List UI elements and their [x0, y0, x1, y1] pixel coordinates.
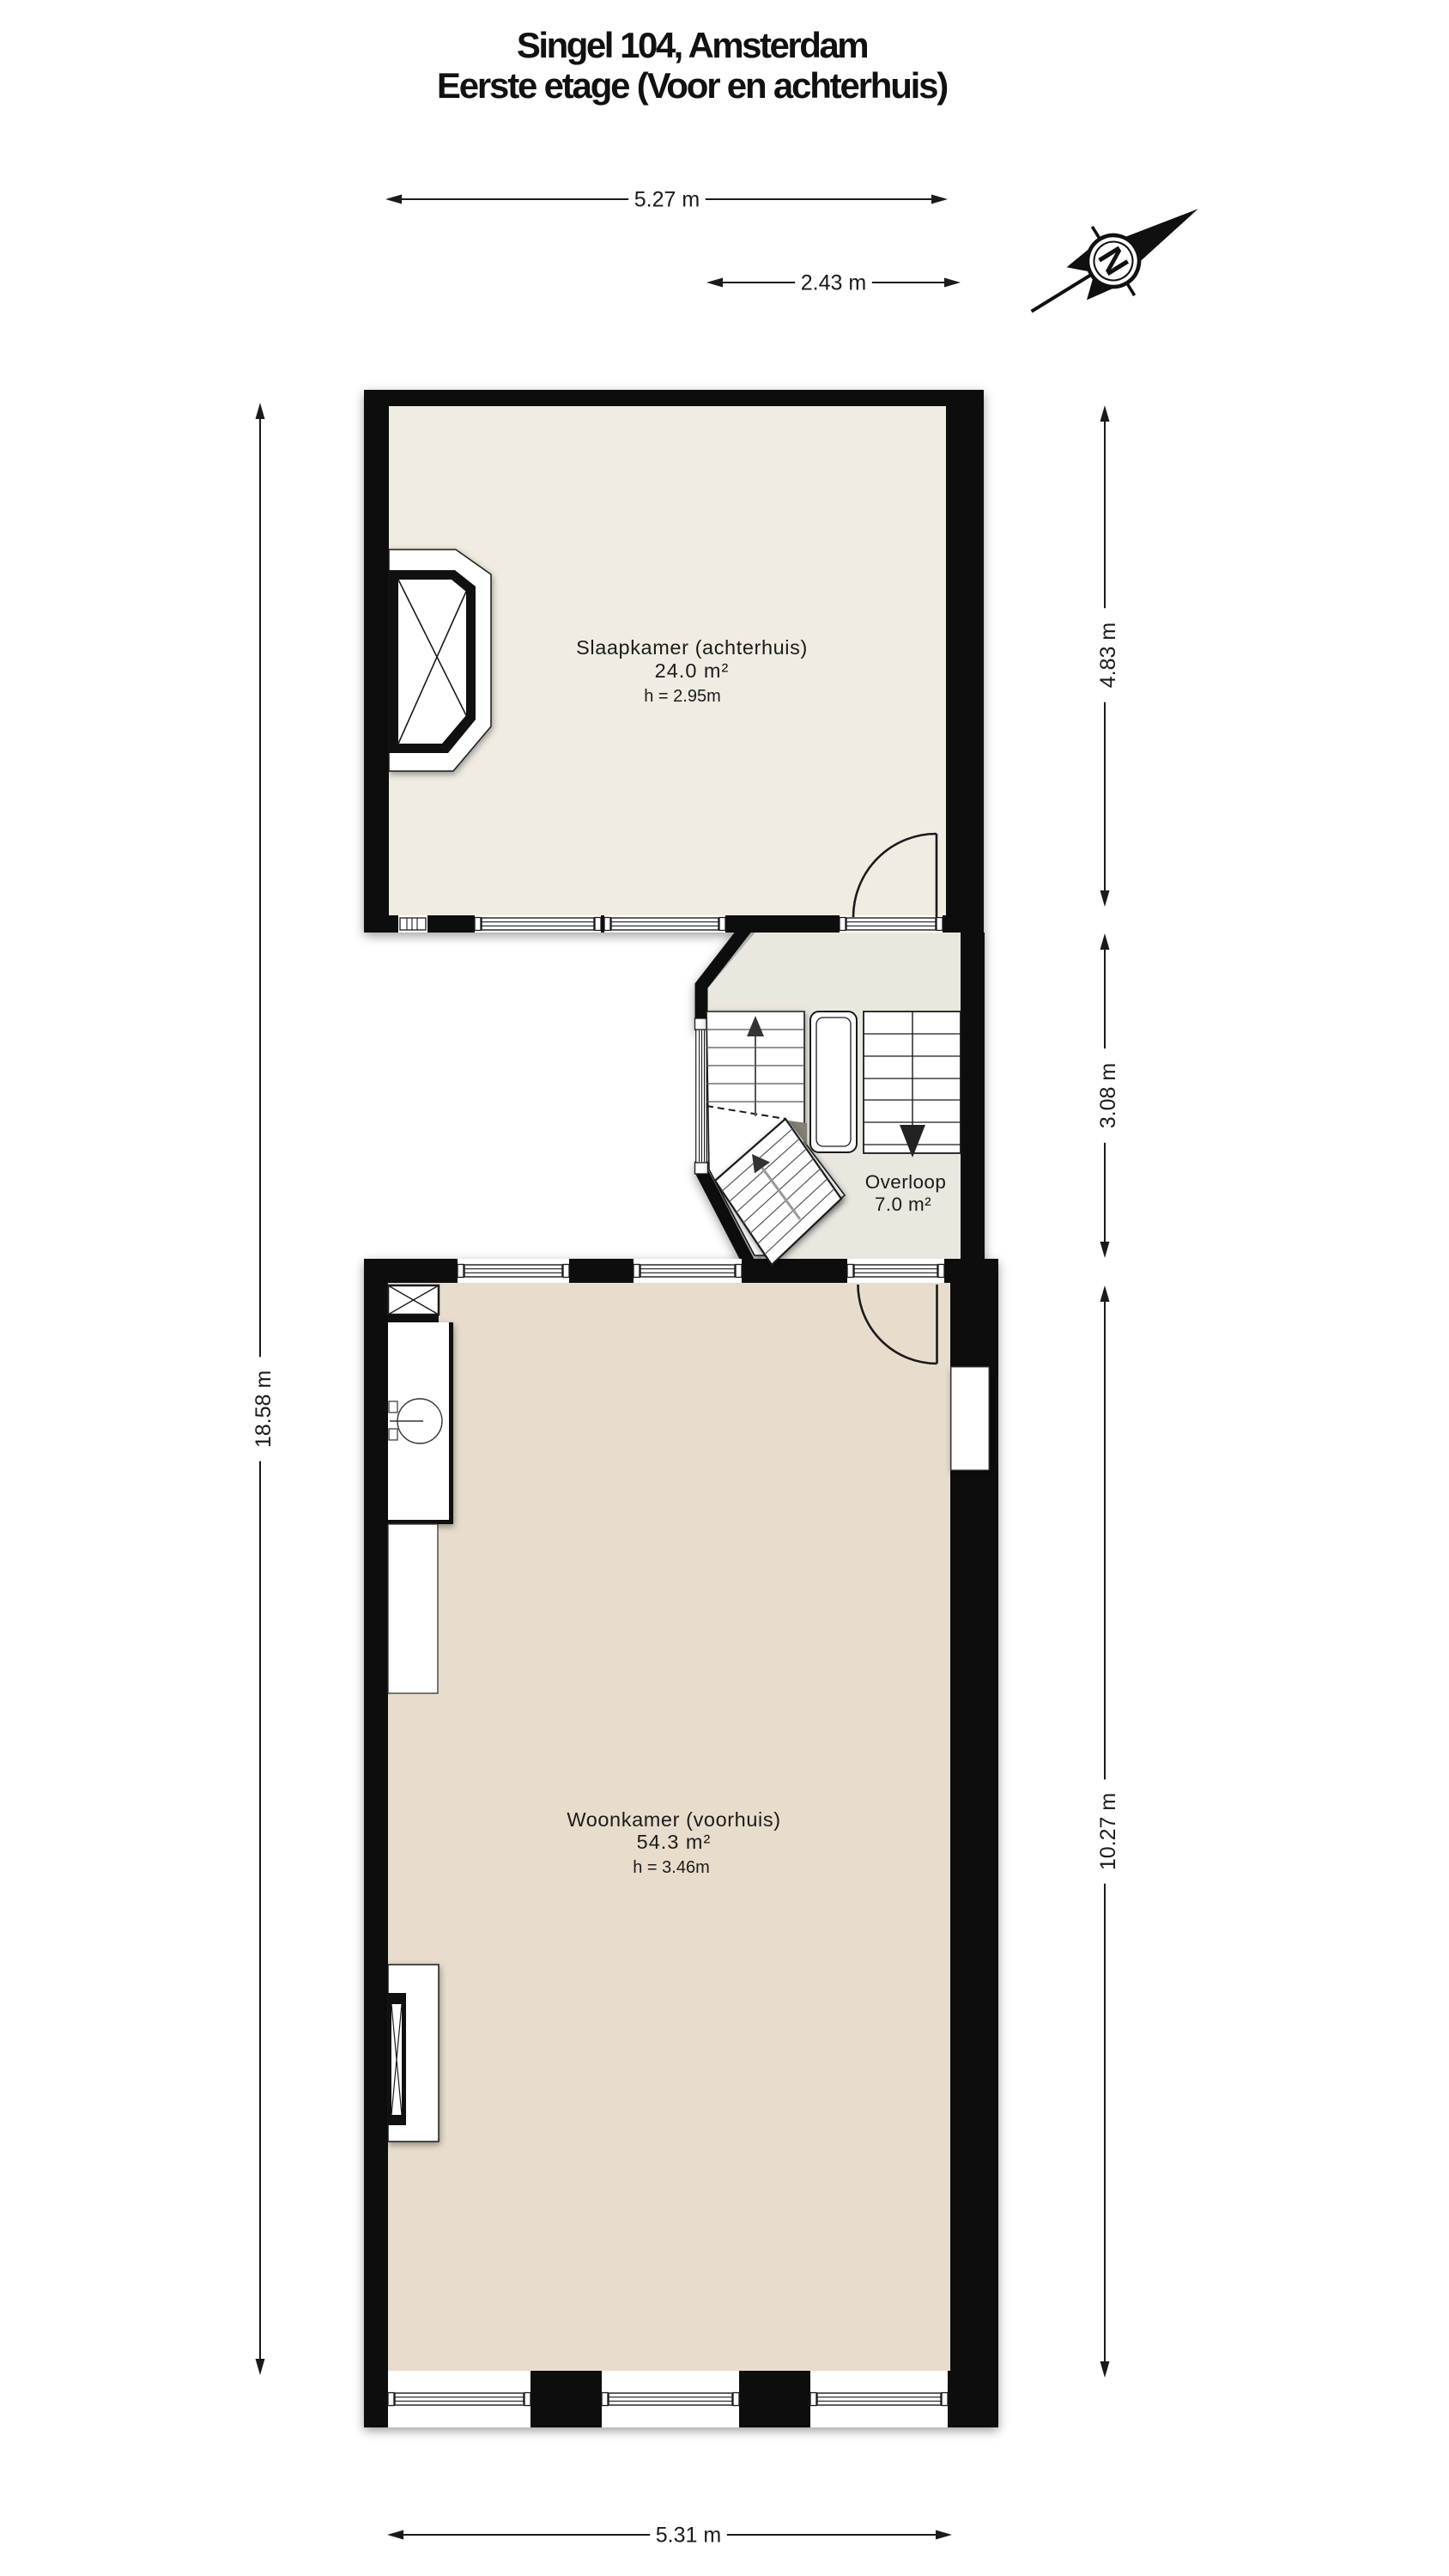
svg-text:18.58 m: 18.58 m — [252, 1370, 276, 1448]
svg-text:Singel 104, Amsterdam: Singel 104, Amsterdam — [517, 25, 867, 65]
svg-text:10.27 m: 10.27 m — [1096, 1793, 1120, 1870]
svg-text:Eerste etage (Voor en achterhu: Eerste etage (Voor en achterhuis) — [437, 65, 947, 106]
svg-text:4.83 m: 4.83 m — [1096, 623, 1120, 688]
svg-text:54.3 m²: 54.3 m² — [637, 1831, 712, 1853]
svg-text:3.08 m: 3.08 m — [1096, 1063, 1120, 1128]
svg-text:Slaapkamer (achterhuis): Slaapkamer (achterhuis) — [576, 636, 808, 659]
svg-text:Woonkamer (voorhuis): Woonkamer (voorhuis) — [567, 1808, 780, 1831]
svg-text:24.0 m²: 24.0 m² — [655, 659, 730, 682]
svg-text:7.0 m²: 7.0 m² — [875, 1194, 931, 1215]
svg-text:2.43 m: 2.43 m — [801, 271, 866, 295]
svg-text:h = 2.95m: h = 2.95m — [644, 687, 721, 706]
svg-text:5.31 m: 5.31 m — [656, 2524, 721, 2548]
svg-text:5.27 m: 5.27 m — [634, 188, 700, 212]
svg-text:h = 3.46m: h = 3.46m — [633, 1858, 710, 1877]
svg-text:Overloop: Overloop — [865, 1171, 947, 1193]
